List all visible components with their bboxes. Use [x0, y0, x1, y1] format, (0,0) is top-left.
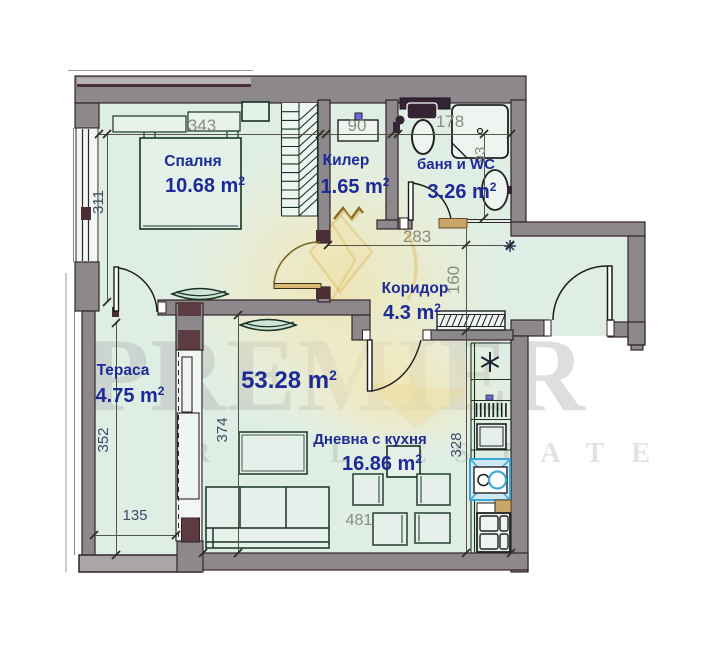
svg-text:90: 90 — [348, 116, 367, 135]
svg-text:311: 311 — [90, 190, 107, 214]
svg-text:10.68 m2: 10.68 m2 — [165, 174, 245, 197]
svg-text:3.26 m2: 3.26 m2 — [428, 180, 497, 203]
svg-text:Коридор: Коридор — [382, 280, 449, 297]
svg-text:4.75 m2: 4.75 m2 — [96, 384, 165, 407]
svg-text:481: 481 — [346, 512, 373, 529]
svg-text:135: 135 — [122, 507, 147, 524]
svg-text:343: 343 — [188, 116, 216, 135]
svg-text:283: 283 — [403, 227, 431, 246]
svg-text:Тераса: Тераса — [97, 362, 150, 379]
svg-text:Килер: Килер — [323, 152, 370, 169]
svg-text:53.28 m2: 53.28 m2 — [241, 367, 337, 394]
svg-text:374: 374 — [214, 417, 231, 442]
svg-text:178: 178 — [436, 112, 464, 131]
svg-text:352: 352 — [95, 427, 112, 452]
svg-text:Спалня: Спалня — [164, 153, 221, 170]
svg-text:16.86 m2: 16.86 m2 — [342, 452, 422, 475]
svg-text:баня и WC: баня и WC — [417, 156, 495, 173]
svg-text:1.65 m2: 1.65 m2 — [321, 175, 390, 198]
svg-text:Дневна с кухня: Дневна с кухня — [313, 431, 427, 448]
svg-text:4.3 m2: 4.3 m2 — [383, 301, 441, 324]
svg-text:328: 328 — [448, 432, 465, 457]
